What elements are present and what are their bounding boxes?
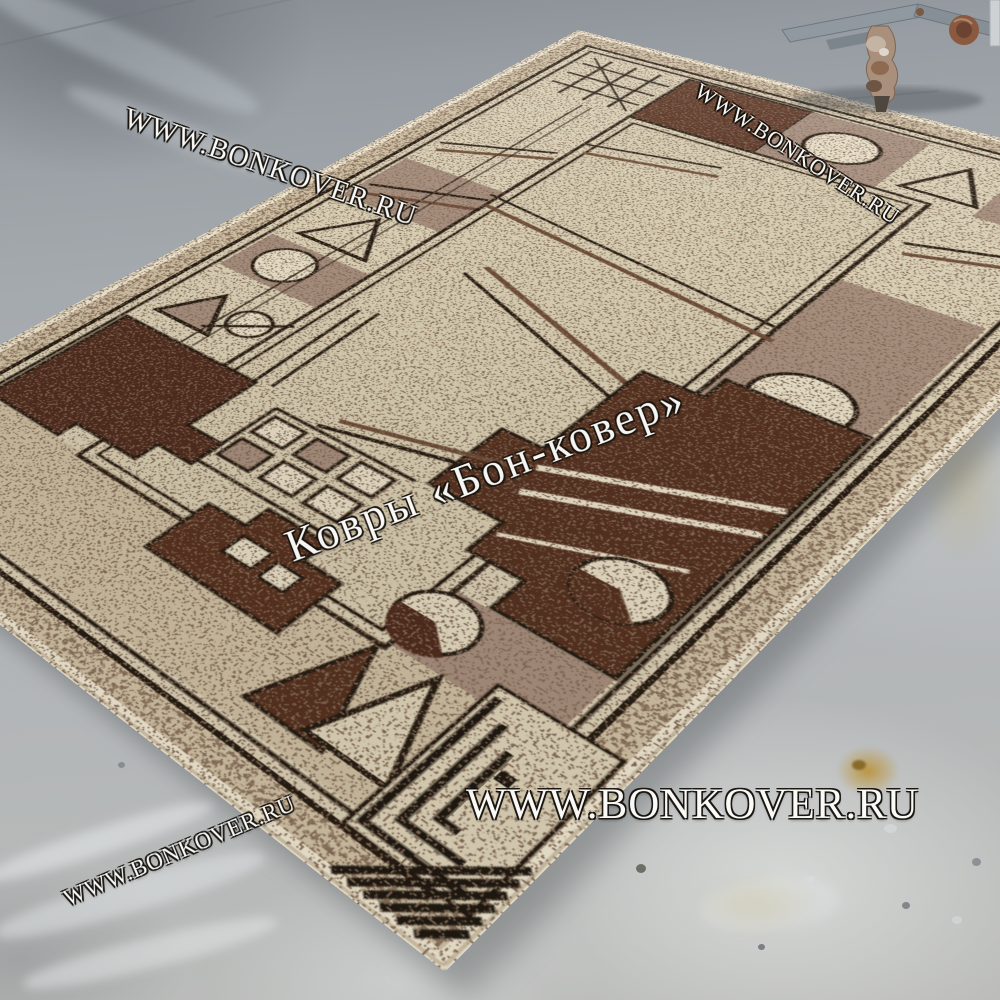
floor-chip	[806, 876, 815, 883]
floor-spot	[118, 762, 125, 768]
peeling-paint	[879, 48, 889, 56]
caster-wheel-hub	[956, 22, 972, 38]
floor-spot	[902, 902, 910, 909]
yellow-paint-stain	[852, 760, 866, 770]
furniture-base	[768, 0, 1000, 128]
yellow-paint-stain	[690, 872, 820, 936]
floor-spot	[636, 864, 646, 873]
floor-chip	[952, 916, 962, 924]
peeling-paint	[871, 61, 889, 75]
watermark-bottom-center: WWW.BONKOVER.RU	[466, 780, 919, 829]
peeling-paint	[866, 80, 882, 92]
white-pipe	[990, 0, 1000, 46]
bolt	[916, 8, 924, 16]
floor-spot	[758, 944, 765, 950]
floor-spot	[972, 858, 981, 866]
